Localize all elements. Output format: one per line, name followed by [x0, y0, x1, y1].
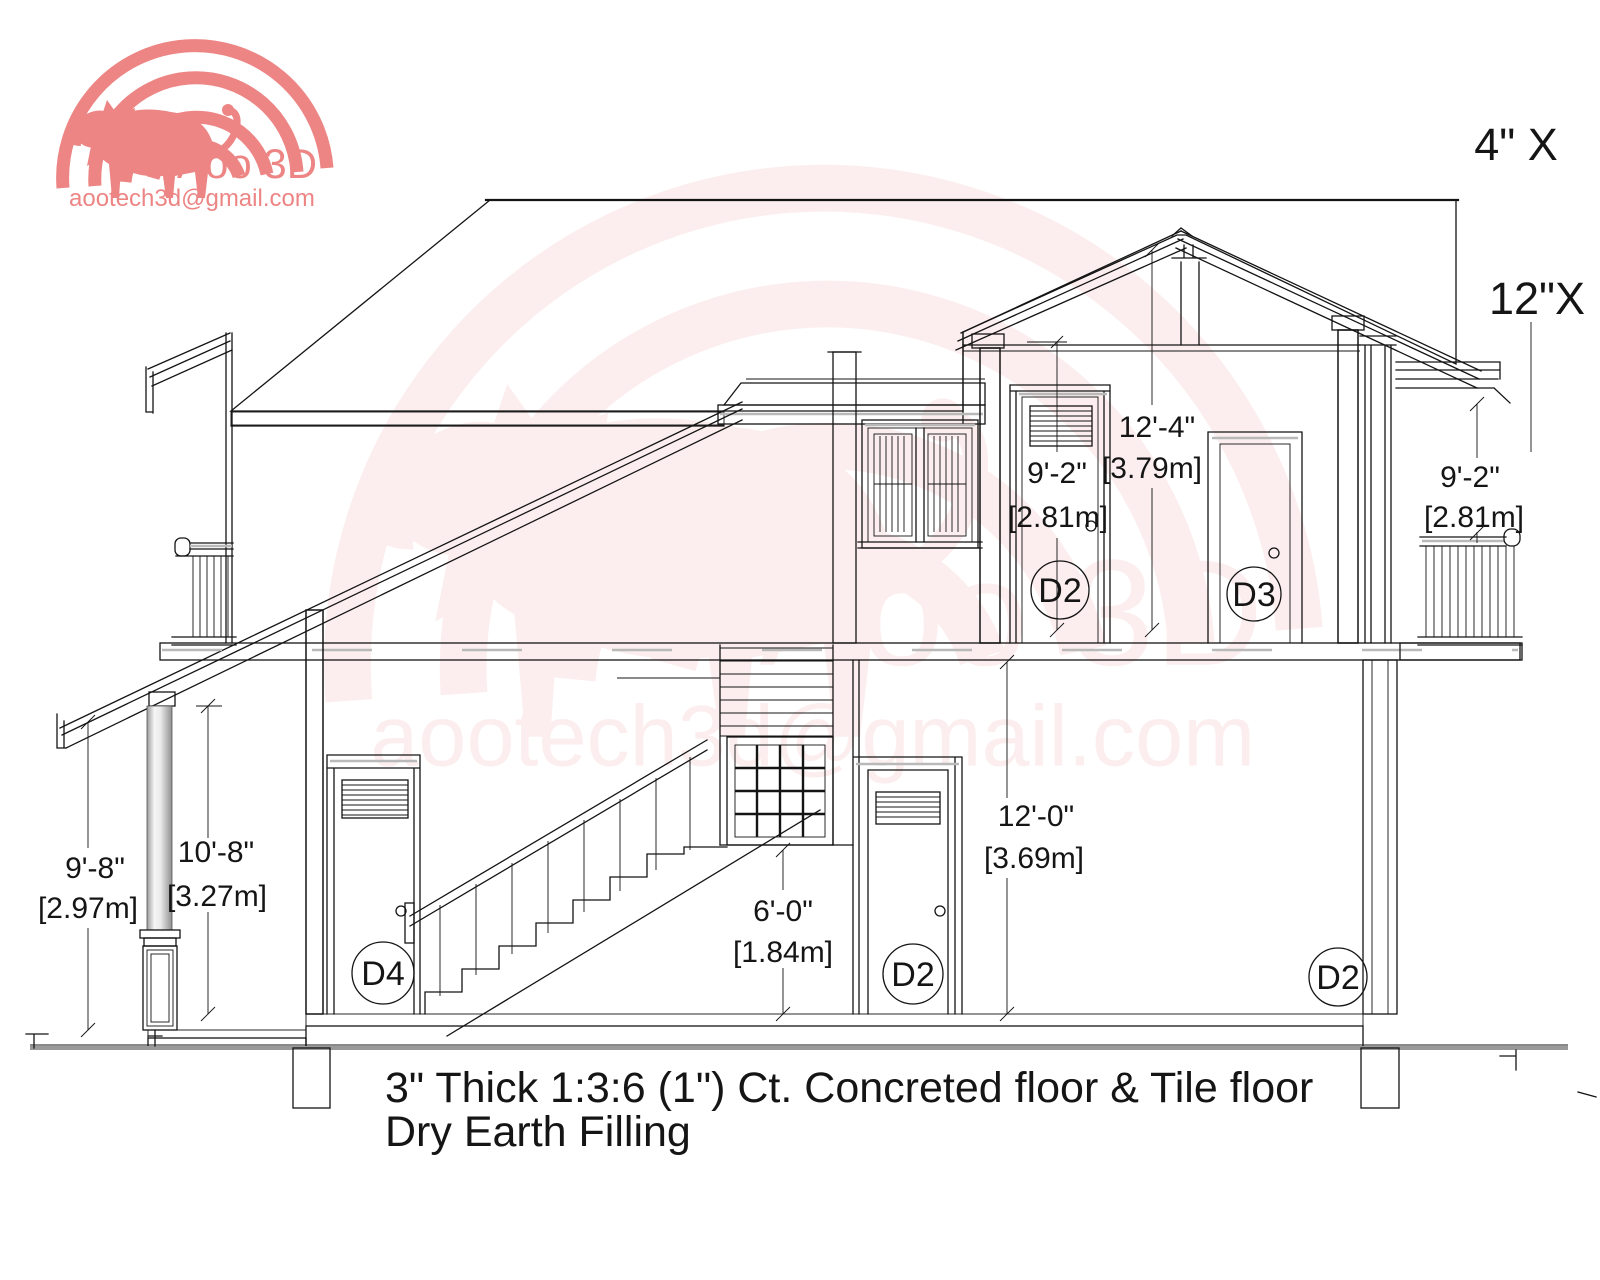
- dim-stairwin-ft: 6'-0": [753, 895, 813, 928]
- dim-upper-ft: 12'-4": [1119, 411, 1195, 444]
- tag-d2-upper: D2: [1038, 572, 1081, 610]
- right-ground-wall: [1363, 660, 1397, 1014]
- upper-cut-wall-right: [1332, 316, 1396, 643]
- porch-column: [140, 692, 180, 1030]
- header-logo: [63, 46, 327, 212]
- roof-label-2: 12"X: [1489, 273, 1585, 324]
- dim-balcony-m: [2.81m]: [1424, 501, 1524, 534]
- porch-cut-wall: [306, 610, 323, 1014]
- note-floor: 3" Thick 1:3:6 (1") Ct. Concreted floor …: [385, 1064, 1313, 1112]
- dim-porch-m: [2.97m]: [38, 892, 138, 925]
- tag-d2-right: D2: [1316, 959, 1359, 997]
- left-wall: [226, 333, 232, 643]
- dim-ground-ft: 12'-0": [998, 800, 1074, 833]
- dim-balcony-ft: 9'-2": [1440, 461, 1500, 494]
- dim-veranda-ft: 10'-8": [178, 836, 254, 869]
- note-filling: Dry Earth Filling: [385, 1108, 691, 1156]
- dim-porch-ft: 9'-8": [65, 852, 125, 885]
- dim-updoor-m: [2.81m]: [1008, 501, 1108, 534]
- dim-ground-m: [3.69m]: [984, 842, 1084, 875]
- dim-stairwin-m: [1.84m]: [733, 936, 833, 969]
- watermark: [347, 188, 1299, 784]
- right-balcony-railing: [1400, 529, 1522, 660]
- dim-upper-m: [3.79m]: [1102, 452, 1202, 485]
- roof-label-1: 4" X: [1474, 119, 1558, 170]
- house-section-drawing: Aoo 3D aootech3d@gmail.com: [0, 0, 1600, 1280]
- dim-veranda-m: [3.27m]: [167, 880, 267, 913]
- tag-d4: D4: [361, 955, 404, 993]
- tag-d2-ground: D2: [891, 956, 934, 994]
- dim-updoor-ft: 9'-2": [1027, 457, 1087, 490]
- ground-floor-slab: [148, 1014, 1363, 1048]
- tag-d3: D3: [1232, 576, 1275, 614]
